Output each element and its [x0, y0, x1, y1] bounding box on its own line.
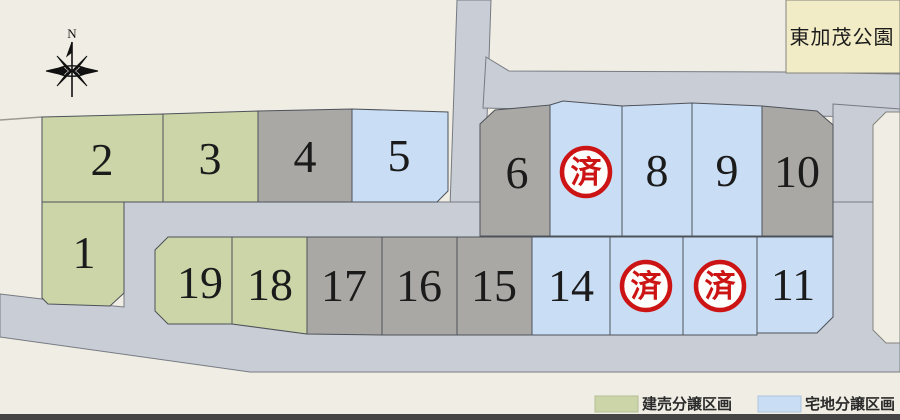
lot-18: 18	[232, 237, 307, 334]
legend-swatch-land	[758, 396, 801, 412]
lot-10: 10	[762, 106, 833, 236]
park-block: 東加茂公園	[786, 0, 900, 73]
subdivision-map: 東加茂公園 2 3 4 5 1 19 18 17 16 15	[0, 0, 900, 420]
lot-14-label: 14	[548, 260, 594, 311]
legend-label-built: 建売分譲区画	[642, 395, 732, 413]
lot-17-label: 17	[321, 260, 367, 311]
lot-2: 2	[42, 114, 163, 202]
bottom-border-bar	[0, 414, 900, 420]
lot-3: 3	[163, 111, 258, 202]
lot-11-label: 11	[771, 259, 815, 310]
legend-item-land: 宅地分譲区画	[758, 395, 895, 413]
lot-4: 4	[258, 109, 352, 202]
lot-8: 8	[622, 103, 692, 236]
lot-15: 15	[457, 237, 532, 335]
legend-swatch-built	[595, 396, 638, 412]
lot-15-label: 15	[471, 260, 517, 311]
sold-stamp-icon: 済	[562, 148, 610, 196]
lot-2-label: 2	[91, 134, 114, 185]
parcel-island	[873, 112, 900, 343]
sold-stamp-icon: 済	[622, 262, 670, 310]
sold-stamp-label: 済	[631, 269, 663, 304]
lot-6: 6	[480, 105, 550, 236]
lot-6-label: 6	[506, 147, 529, 198]
lot-14: 14	[532, 237, 610, 335]
park-label: 東加茂公園	[790, 26, 895, 49]
lot-11: 11	[757, 237, 833, 333]
lot-sold-b: 済	[610, 237, 683, 335]
lot-sold-c: 済	[683, 237, 757, 335]
compass-n-label: N	[67, 26, 77, 41]
lot-18-label: 18	[247, 259, 293, 310]
sold-stamp-icon: 済	[696, 262, 744, 310]
lot-1: 1	[42, 202, 124, 306]
lot-1-label: 1	[73, 227, 96, 278]
lot-17: 17	[307, 237, 382, 335]
lot-9-label: 9	[716, 145, 739, 196]
lot-5: 5	[352, 109, 448, 202]
lot-16: 16	[382, 237, 457, 335]
lot-19: 19	[155, 237, 232, 324]
lot-sold-a: 済	[550, 101, 622, 236]
lot-3-label: 3	[199, 133, 222, 184]
legend-item-built: 建売分譲区画	[595, 395, 732, 413]
lot-10-label: 10	[774, 146, 820, 197]
legend-label-land: 宅地分譲区画	[805, 395, 895, 413]
sold-stamp-label: 済	[571, 155, 603, 190]
lot-9: 9	[692, 103, 762, 236]
sold-stamp-label: 済	[705, 269, 737, 304]
lot-8-label: 8	[646, 145, 669, 196]
lot-19-label: 19	[177, 257, 223, 308]
lot-4-label: 4	[294, 131, 317, 182]
lot-5-label: 5	[388, 130, 411, 181]
map-canvas: 東加茂公園 2 3 4 5 1 19 18 17 16 15	[0, 0, 900, 420]
lot-16-label: 16	[396, 260, 442, 311]
